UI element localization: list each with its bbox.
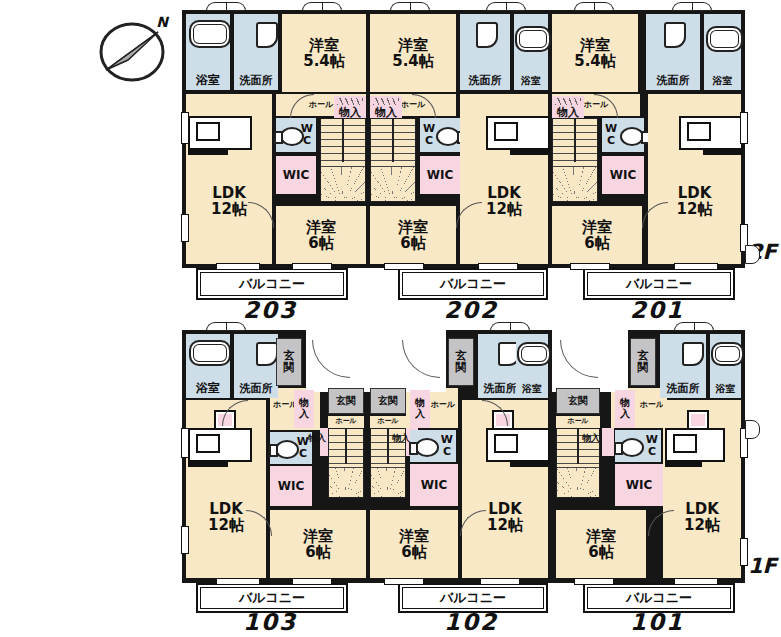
kitchen-counter-icon xyxy=(188,116,252,150)
bathtub-icon xyxy=(711,342,744,366)
room-washroom-203: 洗面所 xyxy=(234,14,278,90)
room-label: 洋室 5.4帖 xyxy=(370,14,456,92)
hall-stair-202: ホール xyxy=(370,416,406,428)
window xyxy=(181,428,189,458)
unit-number-203: 203 xyxy=(230,297,310,323)
room-west-6-101: 洋室 6帖 xyxy=(556,510,646,578)
bathtub-icon xyxy=(189,340,231,366)
balcony-102: バルコニー xyxy=(398,583,548,613)
window xyxy=(740,112,748,144)
room-west-6-203: 洋室 6帖 xyxy=(276,206,366,264)
window xyxy=(480,578,520,585)
entrance-203-ground: 玄関 xyxy=(328,388,364,414)
storage-label: 物 入 xyxy=(410,390,430,428)
sink-icon xyxy=(256,22,278,48)
room-west-5-4-202: 洋室 5.4帖 xyxy=(370,14,456,92)
hall-label: ホール xyxy=(370,416,406,428)
balcony-103: バルコニー xyxy=(196,583,348,613)
storage-label: 物 入 xyxy=(294,390,314,428)
balcony-label: バルコニー xyxy=(239,275,305,293)
room-washroom-101: 洗面所 xyxy=(660,334,706,398)
window xyxy=(674,578,718,585)
bathtub-icon xyxy=(515,26,551,52)
storage-103: 物 入 xyxy=(294,390,314,428)
entrance-102: 玄 関 xyxy=(448,338,474,386)
window xyxy=(216,263,260,270)
room-west-5-4-201: 洋室 5.4帖 xyxy=(552,14,638,92)
toilet-icon xyxy=(620,127,644,146)
entrance-label: 玄関 xyxy=(557,389,599,413)
double-door-icon xyxy=(490,322,530,331)
room-washroom-201: 洗面所 xyxy=(646,14,700,90)
room-west-5-4-203: 洋室 5.4帖 xyxy=(282,14,366,92)
door-arc xyxy=(648,510,674,536)
sink-icon xyxy=(682,342,704,366)
room-ldk-102: LDK 12帖 xyxy=(462,400,548,578)
room-wc-203: W C xyxy=(276,118,316,152)
room-wic-101: WIC xyxy=(615,464,663,506)
balcony-202: バルコニー xyxy=(398,268,548,300)
room-wc-102: W C xyxy=(410,430,456,462)
bathtub-icon xyxy=(189,20,231,48)
room-wic-202: WIC xyxy=(420,156,460,194)
kitchen-counter-icon xyxy=(665,428,725,462)
entrance-label: 玄関 xyxy=(371,389,405,413)
double-door-icon xyxy=(206,2,246,11)
floor-label-1f: 1F xyxy=(748,554,777,578)
toilet-icon xyxy=(275,440,299,459)
storage-101: 物 入 xyxy=(615,390,635,428)
stairs-203 xyxy=(320,118,366,202)
window xyxy=(292,578,332,585)
stair-fan xyxy=(371,467,405,497)
door-arc xyxy=(560,340,598,378)
door-arc xyxy=(402,340,440,378)
balcony-label: バルコニー xyxy=(626,275,692,293)
window xyxy=(181,526,189,554)
room-label: 洋室 6帖 xyxy=(276,206,366,264)
storage-102: 物 入 xyxy=(410,390,430,428)
kitchen-counter-icon xyxy=(486,428,550,462)
stairs-201 xyxy=(552,118,598,202)
building-2f: 浴室 洗面所 洋室 5.4帖 ホール 物入 LDK 12帖 W C WIC xyxy=(182,10,745,268)
storage-label: 物入 xyxy=(308,432,326,445)
sink-icon xyxy=(476,22,498,48)
entrance-label: 玄 関 xyxy=(631,339,655,385)
sink-icon xyxy=(664,22,686,48)
kitchen-counter-icon xyxy=(486,116,550,150)
unit-number-202: 202 xyxy=(431,297,511,323)
hall-label: ホール xyxy=(556,416,600,428)
bathtub-icon xyxy=(706,26,743,52)
room-bath-103: 浴室 xyxy=(186,334,230,398)
room-bath-101: 浴室 xyxy=(710,334,741,398)
room-ldk-203: LDK 12帖 xyxy=(186,94,272,264)
porch-north xyxy=(552,330,628,392)
compass-north-label: N xyxy=(156,14,168,30)
room-bath-201: 浴室 xyxy=(704,14,741,90)
room-wic-102: WIC xyxy=(410,464,458,506)
room-label: 洋室 6帖 xyxy=(370,510,458,578)
storage-label: 物入 xyxy=(582,432,600,445)
room-label: 洋室 6帖 xyxy=(370,206,456,264)
door-arc xyxy=(246,510,272,536)
room-washroom-202: 洗面所 xyxy=(460,14,510,90)
window xyxy=(384,263,424,270)
room-west-6-202: 洋室 6帖 xyxy=(370,206,456,264)
balcony-101: バルコニー xyxy=(583,583,735,613)
door-arc xyxy=(312,340,350,378)
room-west-6-201: 洋室 6帖 xyxy=(552,206,642,264)
kitchen-counter-icon xyxy=(188,428,252,462)
room-wic-203: WIC xyxy=(276,156,316,194)
window xyxy=(181,214,189,242)
storage-label: 物入 xyxy=(392,432,410,445)
window xyxy=(216,578,260,585)
hall-stair-201: ホール xyxy=(556,416,600,428)
window xyxy=(674,263,718,270)
window xyxy=(574,578,614,585)
room-wic-201: WIC xyxy=(602,156,644,194)
room-label: 洋室 6帖 xyxy=(552,206,642,264)
room-wc-101: W C xyxy=(615,430,661,462)
room-west-6-102: 洋室 6帖 xyxy=(370,510,458,578)
stair-fan xyxy=(553,166,597,201)
room-ldk-202: LDK 12帖 xyxy=(460,94,548,264)
entrance-label: 玄関 xyxy=(329,389,363,413)
unit-number-201: 201 xyxy=(617,297,697,323)
hall-label: ホール xyxy=(328,416,364,428)
room-washroom-103: 洗面所 xyxy=(234,334,278,398)
toilet-icon xyxy=(415,438,439,457)
double-door-icon xyxy=(574,2,614,11)
stair-fan xyxy=(329,467,363,497)
double-door-icon xyxy=(206,322,246,331)
entrance-202-ground: 玄関 xyxy=(370,388,406,414)
room-label: 洋室 5.4帖 xyxy=(282,14,366,92)
room-label: 洋室 5.4帖 xyxy=(552,14,638,92)
kitchen-counter-icon xyxy=(679,116,743,150)
window xyxy=(384,578,424,585)
double-door-icon xyxy=(486,2,526,11)
entrance-label: 玄 関 xyxy=(449,339,473,385)
room-bath-203: 浴室 xyxy=(186,14,230,90)
room-label: WIC xyxy=(270,466,312,506)
room-label: WIC xyxy=(276,156,316,194)
storage-under-stairs xyxy=(602,428,614,456)
balcony-label: バルコニー xyxy=(239,589,305,607)
room-label: WIC xyxy=(615,464,663,506)
window xyxy=(478,263,518,270)
room-label: WIC xyxy=(410,464,458,506)
double-door-icon xyxy=(302,2,342,11)
double-door-icon xyxy=(390,2,430,11)
toilet-icon xyxy=(280,127,304,146)
room-label: WIC xyxy=(420,156,460,194)
room-wc-202: W C xyxy=(420,118,460,152)
entrance-label: 玄 関 xyxy=(277,339,301,385)
window xyxy=(740,538,748,566)
window xyxy=(181,112,189,144)
stair-fan xyxy=(557,467,599,497)
door-arc xyxy=(642,202,668,228)
entrance-103: 玄 関 xyxy=(276,338,302,386)
hall-stair-203: ホール xyxy=(328,416,364,428)
room-wc-103: W C xyxy=(270,432,312,464)
room-ldk-201: LDK 12帖 xyxy=(648,94,741,264)
room-bath-102: 浴室 xyxy=(516,334,548,398)
room-ldk-103: LDK 12帖 xyxy=(186,400,266,578)
toilet-icon xyxy=(436,127,460,146)
balcony-203: バルコニー xyxy=(196,268,348,300)
room-label: 洋室 6帖 xyxy=(556,510,646,578)
room-label: 洋室 6帖 xyxy=(270,510,366,578)
stairs-202 xyxy=(370,118,416,202)
window xyxy=(570,263,610,270)
building-1f: 浴室 洗面所 玄 関 ホール 物 入 W C WIC LDK 12帖 xyxy=(182,330,745,583)
stair-fan xyxy=(321,166,365,201)
balcony-label: バルコニー xyxy=(440,589,506,607)
balcony-label: バルコニー xyxy=(440,275,506,293)
balcony-201: バルコニー xyxy=(583,268,735,300)
bathtub-icon xyxy=(517,342,551,366)
room-bath-202: 浴室 xyxy=(514,14,548,90)
floor-plan-canvas: N 浴室 洗面所 洋室 5.4帖 ホール 物入 LDK 12帖 W C xyxy=(0,0,781,637)
sink-icon xyxy=(256,342,278,366)
room-ldk-101: LDK 12帖 xyxy=(663,400,741,578)
double-door-icon xyxy=(674,322,714,331)
side-door-icon xyxy=(745,245,760,264)
window xyxy=(292,263,332,270)
double-door-icon xyxy=(672,2,712,11)
side-door-icon xyxy=(745,420,760,439)
compass: N xyxy=(96,16,170,84)
stair-fan xyxy=(371,166,415,201)
balcony-label: バルコニー xyxy=(626,589,692,607)
porch-north xyxy=(306,330,446,392)
room-west-6-103: 洋室 6帖 xyxy=(270,510,366,578)
entrance-101: 玄 関 xyxy=(630,338,656,386)
equipment-icon xyxy=(687,410,709,430)
toilet-icon xyxy=(620,438,644,457)
stairs-up-203 xyxy=(328,428,364,498)
storage-label: 物 入 xyxy=(615,390,635,428)
room-wic-103: WIC xyxy=(270,466,312,506)
room-wc-201: W C xyxy=(602,118,644,152)
entrance-201-ground: 玄関 xyxy=(556,388,600,414)
room-label: WIC xyxy=(602,156,644,194)
